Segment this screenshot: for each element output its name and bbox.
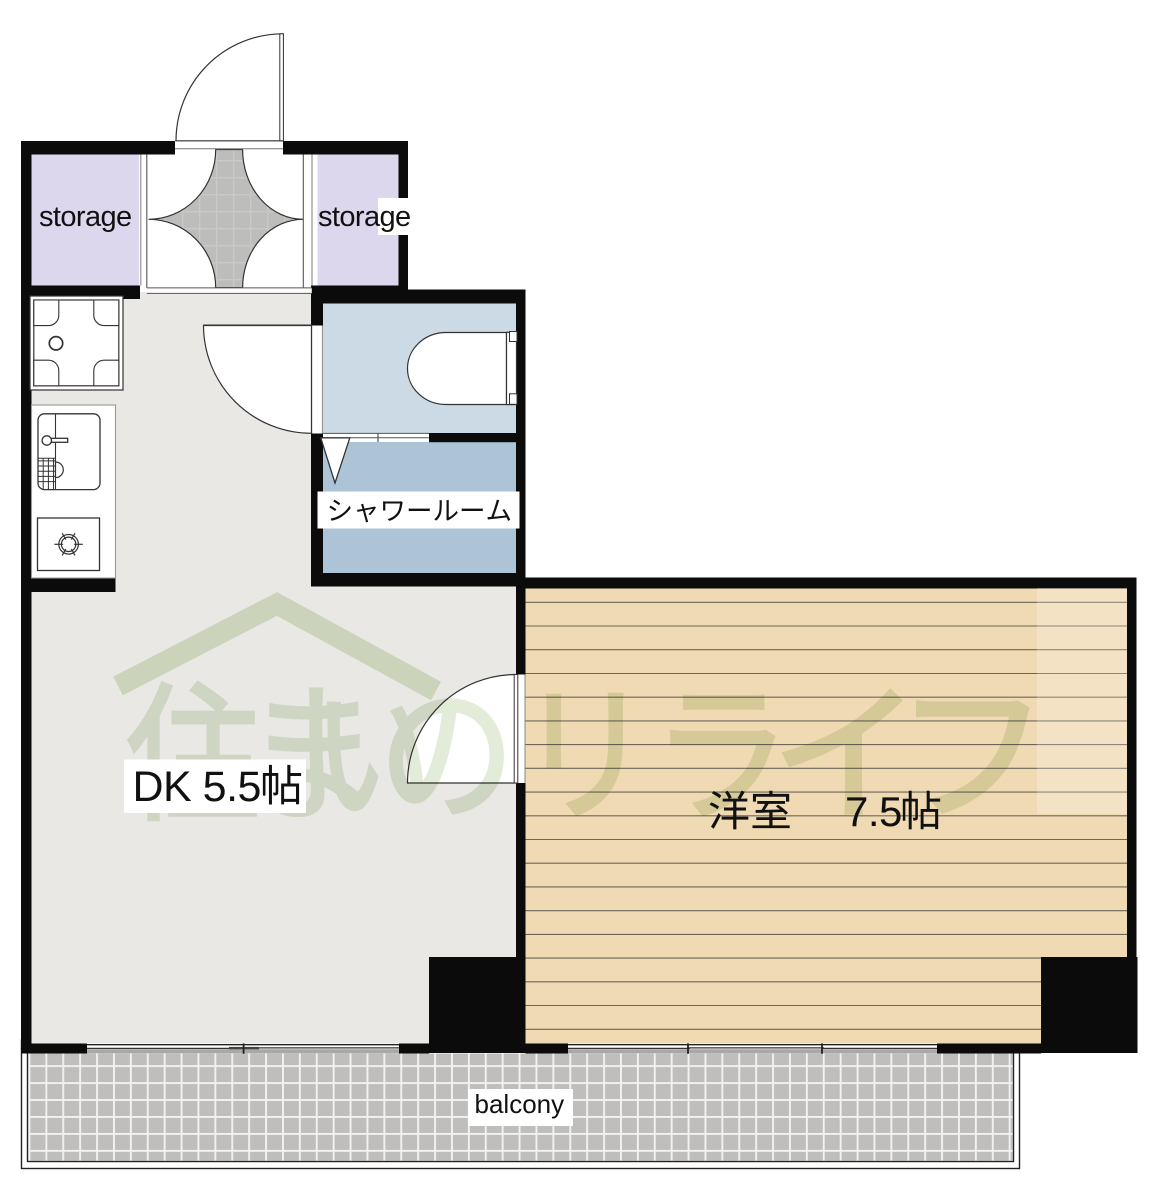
svg-text:7.5: 7.5 [845,788,902,835]
svg-text:storage: storage [39,201,132,233]
svg-text:balcony: balcony [475,1089,565,1119]
svg-text:storage: storage [318,201,411,233]
svg-text:DK 5.5: DK 5.5 [133,763,261,811]
